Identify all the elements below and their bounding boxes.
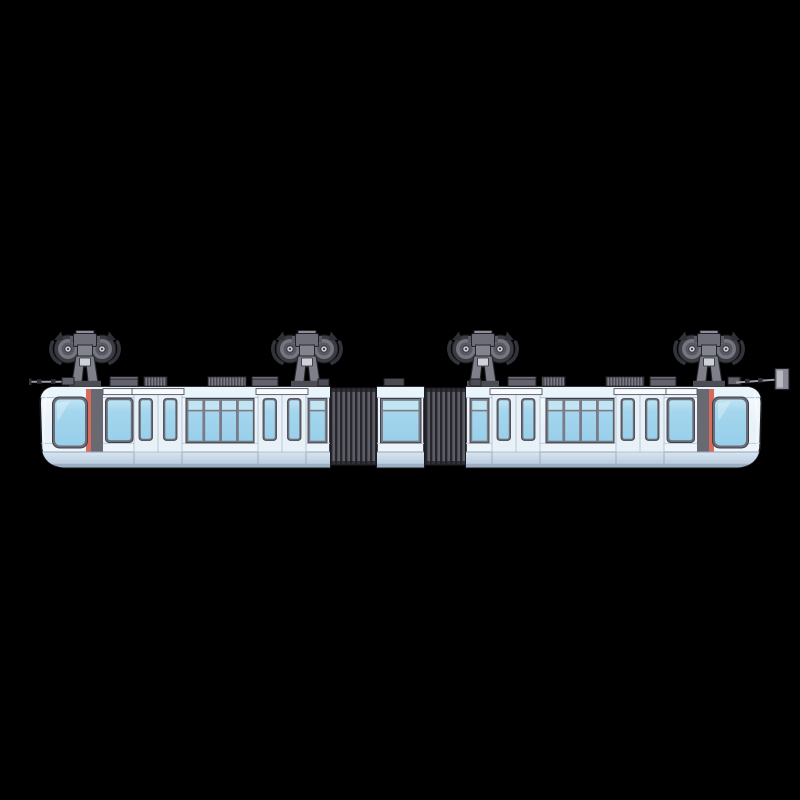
door-header-c bbox=[490, 389, 542, 395]
door-window bbox=[499, 400, 509, 439]
ribbed-vent-box bbox=[606, 377, 644, 386]
end-marker-panel bbox=[775, 369, 789, 390]
cab-door-window-left bbox=[106, 398, 134, 443]
ribbed-vent-box bbox=[208, 377, 246, 386]
door-window bbox=[265, 400, 275, 439]
gangway-bellows-right bbox=[425, 388, 467, 465]
ribbed-vent-box bbox=[144, 377, 167, 386]
passenger-door-d bbox=[616, 394, 664, 452]
equipment-box-top bbox=[650, 377, 676, 379]
door-window bbox=[289, 400, 299, 439]
equipment-box-small bbox=[470, 379, 481, 386]
windshield-right bbox=[713, 397, 749, 448]
window-band-right bbox=[546, 399, 614, 443]
door-header-d bbox=[614, 389, 666, 395]
passenger-door-a bbox=[134, 394, 182, 452]
door-window bbox=[623, 400, 633, 439]
skirt-shadow bbox=[38, 464, 764, 468]
window-band-left bbox=[186, 399, 254, 443]
cab-door-window-right bbox=[667, 398, 695, 443]
scene-canvas: Suspended monorail trainset, side view i… bbox=[0, 0, 800, 800]
center-section-window bbox=[381, 399, 422, 443]
cab-door-header-left bbox=[103, 389, 134, 395]
windshield-left bbox=[53, 397, 88, 448]
passenger-door-b bbox=[258, 394, 306, 452]
equipment-box-small bbox=[318, 379, 329, 386]
monorail-illustration: Suspended monorail trainset, side view i… bbox=[0, 0, 800, 800]
cab-door-header-right bbox=[666, 389, 697, 395]
wide-window-left bbox=[308, 399, 327, 443]
ribbed-vent-box bbox=[542, 377, 565, 386]
gray-stripe-left-cab bbox=[91, 389, 103, 452]
door-window bbox=[523, 400, 533, 439]
gray-stripe-right-cab bbox=[697, 389, 709, 452]
equipment-box-top bbox=[508, 377, 536, 379]
door-header-a bbox=[132, 389, 184, 395]
passenger-door-c bbox=[492, 394, 540, 452]
equipment-box-top bbox=[110, 377, 138, 379]
door-window bbox=[141, 400, 151, 439]
door-header-b bbox=[256, 389, 308, 395]
gangway-bellows-left bbox=[331, 388, 378, 465]
wide-window-right bbox=[470, 399, 489, 443]
door-window bbox=[165, 400, 175, 439]
center-roof-box bbox=[384, 379, 404, 386]
door-window bbox=[647, 400, 657, 439]
equipment-box-top bbox=[252, 377, 278, 379]
